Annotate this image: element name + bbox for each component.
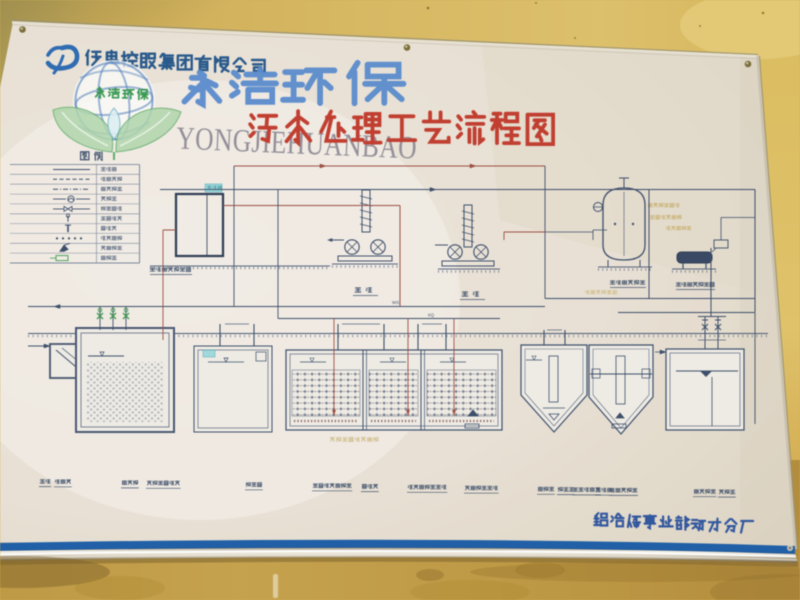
svg-text:KQ: KQ xyxy=(428,313,435,318)
svg-text:WS: WS xyxy=(392,300,399,305)
